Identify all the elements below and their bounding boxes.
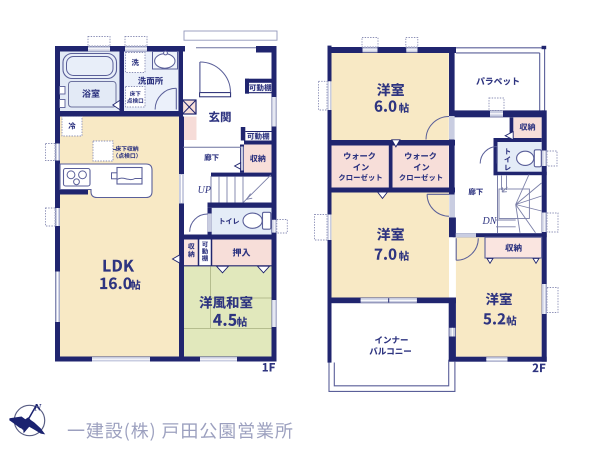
svg-text:UP: UP — [198, 185, 211, 196]
svg-text:DN: DN — [482, 216, 498, 227]
svg-text:N: N — [33, 403, 42, 413]
